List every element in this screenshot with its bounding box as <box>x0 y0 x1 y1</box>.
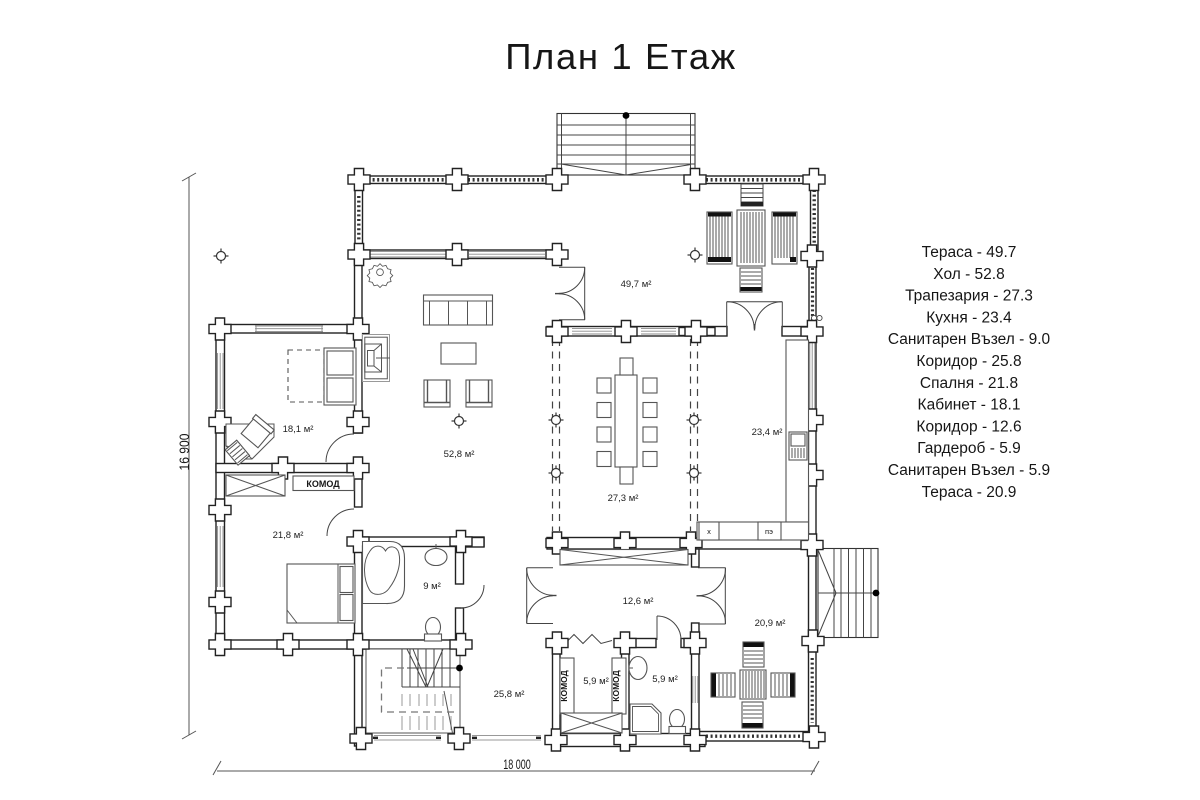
svg-text:18 000: 18 000 <box>503 757 531 773</box>
svg-text:27,3 м²: 27,3 м² <box>608 493 639 504</box>
svg-text:5,9 м²: 5,9 м² <box>652 674 678 685</box>
svg-text:Санитарен Възел - 9.0: Санитарен Възел - 9.0 <box>888 331 1051 348</box>
svg-text:План 1 Етаж: План 1 Етаж <box>505 36 737 77</box>
svg-text:25,8 м²: 25,8 м² <box>494 689 525 700</box>
svg-text:18,1 м²: 18,1 м² <box>283 424 314 435</box>
svg-text:Тераса - 20.9: Тераса - 20.9 <box>922 484 1017 501</box>
svg-text:Кабинет - 18.1: Кабинет - 18.1 <box>918 397 1021 414</box>
svg-text:Гардероб - 5.9: Гардероб - 5.9 <box>917 440 1021 457</box>
svg-text:52,8 м²: 52,8 м² <box>444 449 475 460</box>
svg-text:23,4 м²: 23,4 м² <box>752 427 783 438</box>
svg-text:49,7 м²: 49,7 м² <box>621 279 652 290</box>
svg-text:КОМОД: КОМОД <box>559 670 569 701</box>
svg-text:12,6 м²: 12,6 м² <box>623 596 654 607</box>
svg-text:Кухня - 23.4: Кухня - 23.4 <box>926 309 1012 326</box>
svg-text:5,9 м²: 5,9 м² <box>583 676 609 687</box>
svg-text:Санитарен Възел - 5.9: Санитарен Възел - 5.9 <box>888 462 1050 479</box>
svg-text:пэ: пэ <box>765 527 773 536</box>
svg-text:Спалня - 21.8: Спалня - 21.8 <box>920 375 1018 392</box>
svg-text:Коридор - 25.8: Коридор - 25.8 <box>916 353 1021 370</box>
svg-text:Коридор - 12.6: Коридор - 12.6 <box>916 418 1021 435</box>
svg-text:КОМОД: КОМОД <box>306 479 340 489</box>
svg-text:21,8 м²: 21,8 м² <box>273 530 304 541</box>
svg-text:9 м²: 9 м² <box>423 581 441 592</box>
svg-text:Тераса - 49.7: Тераса - 49.7 <box>922 244 1017 261</box>
svg-text:16 900: 16 900 <box>177 434 192 471</box>
svg-text:Хол - 52.8: Хол - 52.8 <box>933 266 1004 283</box>
svg-text:КОМОД: КОМОД <box>611 670 621 701</box>
svg-text:20,9 м²: 20,9 м² <box>755 618 786 629</box>
svg-text:Трапезария - 27.3: Трапезария - 27.3 <box>905 288 1033 305</box>
svg-text:х: х <box>707 527 711 536</box>
